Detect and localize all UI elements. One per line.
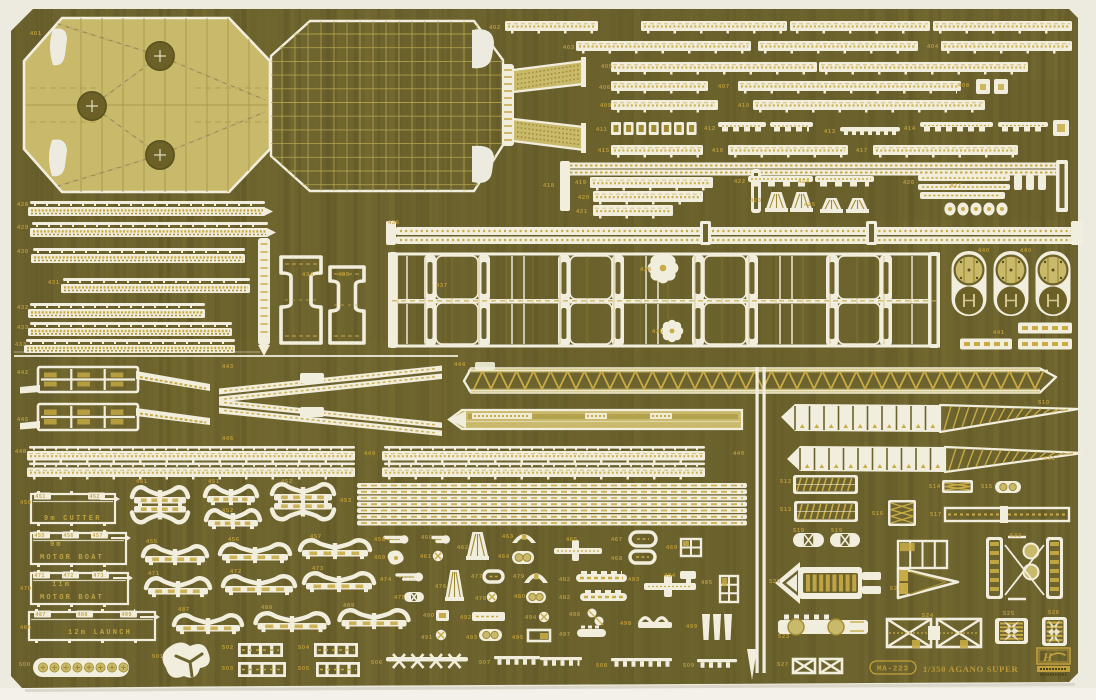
svg-text:449: 449 bbox=[364, 451, 376, 457]
svg-text:484: 484 bbox=[664, 573, 676, 579]
svg-text:451: 451 bbox=[36, 494, 46, 500]
svg-text:415: 415 bbox=[598, 148, 610, 154]
svg-text:419: 419 bbox=[575, 180, 587, 186]
svg-text:483: 483 bbox=[628, 577, 640, 583]
svg-text:465: 465 bbox=[566, 537, 578, 543]
svg-text:488: 488 bbox=[261, 605, 273, 611]
svg-text:461: 461 bbox=[420, 554, 432, 560]
svg-text:522: 522 bbox=[1010, 533, 1022, 539]
svg-text:435: 435 bbox=[338, 272, 350, 278]
svg-text:509: 509 bbox=[683, 663, 695, 669]
svg-text:446: 446 bbox=[222, 436, 234, 442]
svg-text:468: 468 bbox=[611, 556, 623, 562]
svg-text:510: 510 bbox=[1038, 400, 1050, 406]
svg-text:477: 477 bbox=[471, 574, 483, 580]
svg-text:433: 433 bbox=[17, 325, 29, 331]
svg-text:9m CUTTER: 9m CUTTER bbox=[44, 515, 102, 523]
svg-text:500: 500 bbox=[19, 662, 31, 668]
svg-text:433: 433 bbox=[15, 342, 27, 348]
svg-text:460: 460 bbox=[421, 535, 433, 541]
svg-text:410: 410 bbox=[738, 103, 750, 109]
svg-text:494: 494 bbox=[525, 615, 537, 621]
svg-text:492: 492 bbox=[460, 615, 472, 621]
svg-text:442: 442 bbox=[17, 370, 29, 376]
svg-text:452: 452 bbox=[90, 494, 100, 500]
svg-text:426: 426 bbox=[903, 180, 915, 186]
svg-text:451: 451 bbox=[208, 479, 220, 485]
svg-text:441: 441 bbox=[993, 330, 1005, 336]
svg-text:MA-223: MA-223 bbox=[877, 666, 909, 674]
svg-text:489: 489 bbox=[122, 612, 132, 618]
svg-text:491: 491 bbox=[421, 635, 433, 641]
svg-text:444: 444 bbox=[454, 362, 466, 368]
svg-text:423: 423 bbox=[750, 198, 762, 204]
svg-text:516: 516 bbox=[872, 511, 884, 517]
svg-text:478: 478 bbox=[475, 596, 487, 602]
svg-text:456: 456 bbox=[64, 533, 74, 539]
svg-text:464: 464 bbox=[498, 554, 510, 560]
svg-text:517: 517 bbox=[930, 512, 942, 518]
svg-text:418: 418 bbox=[543, 183, 555, 189]
svg-text:472: 472 bbox=[230, 569, 242, 575]
svg-text:505: 505 bbox=[298, 666, 310, 672]
svg-text:404: 404 bbox=[927, 44, 939, 50]
svg-text:469: 469 bbox=[666, 545, 678, 551]
svg-text:437: 437 bbox=[436, 283, 448, 289]
svg-text:414: 414 bbox=[904, 126, 916, 132]
svg-text:427: 427 bbox=[950, 183, 962, 189]
svg-text:424: 424 bbox=[798, 179, 810, 185]
svg-text:405: 405 bbox=[601, 64, 613, 70]
svg-text:411: 411 bbox=[596, 127, 608, 133]
svg-text:490: 490 bbox=[423, 613, 435, 619]
svg-text:429: 429 bbox=[17, 225, 29, 231]
svg-text:11m: 11m bbox=[52, 581, 71, 589]
svg-text:432: 432 bbox=[17, 305, 29, 311]
svg-text:498: 498 bbox=[620, 621, 632, 627]
svg-text:457: 457 bbox=[310, 534, 322, 540]
svg-text:489: 489 bbox=[343, 603, 355, 609]
svg-text:440: 440 bbox=[1020, 248, 1032, 254]
svg-text:452: 452 bbox=[222, 508, 234, 514]
svg-text:406: 406 bbox=[599, 85, 611, 91]
svg-text:434: 434 bbox=[302, 272, 314, 278]
svg-text:445: 445 bbox=[17, 417, 29, 423]
svg-text:MOTOR BOAT: MOTOR BOAT bbox=[40, 554, 104, 562]
svg-text:473: 473 bbox=[94, 573, 104, 579]
svg-text:409: 409 bbox=[600, 103, 612, 109]
svg-text:523: 523 bbox=[778, 634, 790, 640]
svg-text:488: 488 bbox=[78, 612, 88, 618]
svg-text:462: 462 bbox=[457, 545, 469, 551]
svg-text:508: 508 bbox=[596, 663, 608, 669]
svg-text:475: 475 bbox=[394, 595, 406, 601]
svg-text:403: 403 bbox=[563, 45, 575, 51]
svg-text:496: 496 bbox=[569, 612, 581, 618]
svg-text:480: 480 bbox=[514, 594, 526, 600]
svg-text:485: 485 bbox=[701, 580, 713, 586]
svg-text:527: 527 bbox=[777, 662, 789, 668]
svg-text:402: 402 bbox=[489, 25, 501, 31]
svg-text:450: 450 bbox=[20, 500, 32, 506]
svg-text:472: 472 bbox=[64, 573, 74, 579]
svg-text:451: 451 bbox=[136, 479, 148, 485]
svg-text:407: 407 bbox=[718, 84, 730, 90]
svg-text:436: 436 bbox=[388, 220, 400, 226]
svg-text:443: 443 bbox=[222, 364, 234, 370]
svg-text:416: 416 bbox=[712, 148, 724, 154]
svg-text:504: 504 bbox=[298, 645, 310, 651]
svg-text:412: 412 bbox=[704, 126, 716, 132]
svg-text:438: 438 bbox=[640, 267, 652, 273]
svg-text:H: H bbox=[1042, 650, 1053, 664]
svg-text:495: 495 bbox=[512, 635, 524, 641]
svg-text:487: 487 bbox=[178, 607, 190, 613]
svg-text:521: 521 bbox=[890, 586, 902, 592]
svg-text:459: 459 bbox=[374, 555, 386, 561]
svg-text:474: 474 bbox=[380, 577, 392, 583]
svg-text:501: 501 bbox=[152, 654, 164, 660]
svg-text:497: 497 bbox=[559, 632, 571, 638]
svg-text:449: 449 bbox=[733, 451, 745, 457]
svg-text:458: 458 bbox=[374, 537, 386, 543]
svg-text:425: 425 bbox=[804, 202, 816, 208]
svg-text:457: 457 bbox=[93, 533, 103, 539]
svg-text:487: 487 bbox=[36, 612, 46, 618]
svg-text:526: 526 bbox=[1048, 610, 1060, 616]
svg-text:463: 463 bbox=[502, 534, 514, 540]
svg-text:515: 515 bbox=[981, 484, 993, 490]
svg-text:502: 502 bbox=[222, 645, 234, 651]
svg-text:507: 507 bbox=[479, 660, 491, 666]
svg-text:455: 455 bbox=[146, 539, 158, 545]
svg-text:455: 455 bbox=[35, 533, 45, 539]
svg-text:12m LAUNCH: 12m LAUNCH bbox=[68, 629, 132, 637]
svg-text:MOTOR BOAT: MOTOR BOAT bbox=[40, 594, 104, 602]
svg-text:511: 511 bbox=[1044, 456, 1056, 462]
svg-text:431: 431 bbox=[48, 280, 60, 286]
svg-text:440: 440 bbox=[978, 248, 990, 254]
svg-text:408: 408 bbox=[958, 83, 970, 89]
svg-text:452: 452 bbox=[281, 479, 293, 485]
svg-text:524: 524 bbox=[922, 613, 934, 619]
svg-text:420: 420 bbox=[578, 195, 590, 201]
svg-text:519: 519 bbox=[831, 528, 843, 534]
svg-text:1/350 AGANO SUPER: 1/350 AGANO SUPER bbox=[923, 664, 1019, 674]
svg-text:476: 476 bbox=[435, 584, 447, 590]
svg-text:430: 430 bbox=[17, 249, 29, 255]
svg-text:506: 506 bbox=[371, 660, 383, 666]
svg-text:503: 503 bbox=[222, 666, 234, 672]
svg-text:512: 512 bbox=[780, 479, 792, 485]
svg-text:513: 513 bbox=[780, 507, 792, 513]
svg-text:456: 456 bbox=[228, 537, 240, 543]
svg-text:448: 448 bbox=[15, 449, 27, 455]
svg-text:482: 482 bbox=[559, 577, 571, 583]
svg-text:471: 471 bbox=[148, 571, 160, 577]
svg-text:9m: 9m bbox=[50, 541, 63, 549]
svg-text:486: 486 bbox=[20, 625, 32, 631]
svg-text:467: 467 bbox=[611, 537, 623, 543]
svg-text:471: 471 bbox=[35, 573, 45, 579]
svg-text:428: 428 bbox=[17, 202, 29, 208]
svg-text:473: 473 bbox=[312, 566, 324, 572]
svg-text:413: 413 bbox=[824, 129, 836, 135]
svg-text:520: 520 bbox=[769, 579, 781, 585]
svg-text:482: 482 bbox=[559, 595, 571, 601]
svg-text:514: 514 bbox=[929, 484, 941, 490]
svg-text:435: 435 bbox=[652, 329, 664, 335]
svg-text:493: 493 bbox=[466, 635, 478, 641]
svg-text:453: 453 bbox=[340, 498, 352, 504]
svg-text:401: 401 bbox=[30, 31, 42, 37]
svg-text:421: 421 bbox=[576, 209, 588, 215]
svg-text:470: 470 bbox=[20, 586, 32, 592]
svg-text:417: 417 bbox=[856, 148, 868, 154]
svg-text:422: 422 bbox=[734, 179, 746, 185]
svg-text:499: 499 bbox=[686, 624, 698, 630]
svg-text:518: 518 bbox=[793, 528, 805, 534]
svg-text:525: 525 bbox=[1003, 611, 1015, 617]
svg-text:479: 479 bbox=[513, 574, 525, 580]
